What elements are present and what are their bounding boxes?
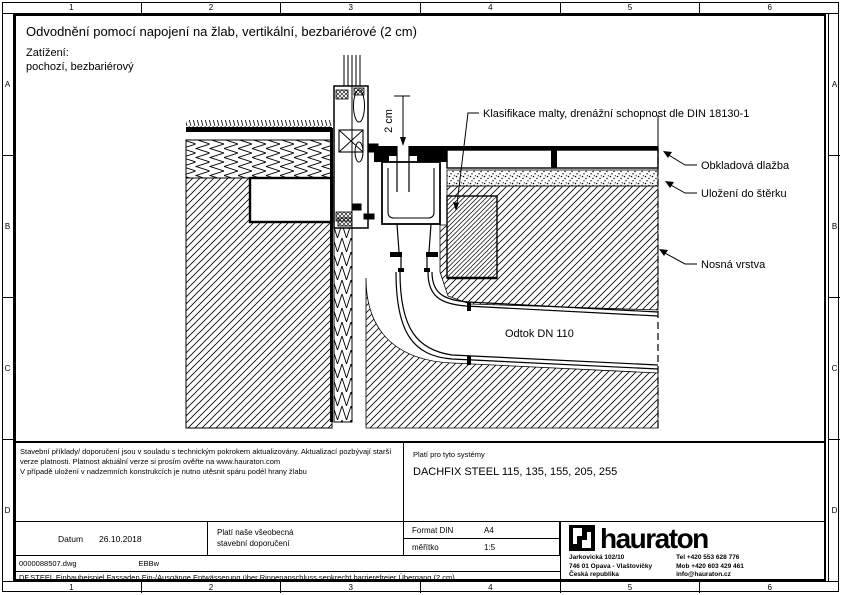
brand-cell: hauraton Jarkovická 102/10 746 01 Opava … <box>560 521 826 583</box>
notes-cell: Stavební příklady/ doporučení jsou v sou… <box>14 443 404 521</box>
grid-ref-strip-right: A B C D <box>828 14 840 581</box>
date-cell: Datum 26.10.2018 <box>14 521 208 555</box>
outlet-label: Odtok DN 110 <box>505 328 574 340</box>
grid-row-label: B <box>829 156 840 298</box>
file-name: 0000088507.dwg <box>19 559 77 568</box>
bedding-label: Uložení do štěrku <box>701 188 787 200</box>
systems-label: Platí pro tyto systémy <box>413 450 826 459</box>
scale-label: měřítko <box>412 543 484 552</box>
pavement-layers <box>440 146 658 310</box>
format-row: Format DIN A4 <box>404 522 559 539</box>
address-line: Česká republika <box>569 571 652 580</box>
grid-col-label: 5 <box>561 582 701 593</box>
grid-col-label: 5 <box>561 2 701 13</box>
brand-address-col: Jarkovická 102/10 746 01 Opava - Vlaštov… <box>569 554 652 580</box>
file-cell: 0000088507.dwg EBBw <box>14 555 560 571</box>
grid-col-label: 3 <box>281 2 421 13</box>
grid-ref-strip-top: 1 2 3 4 5 6 <box>2 2 839 14</box>
hauraton-logo-icon <box>569 525 595 551</box>
format-scale-cell: Format DIN A4 měřítko 1:5 <box>404 521 560 555</box>
brand-contact-col: Tel +420 553 628 776 Mob +420 603 429 46… <box>676 554 744 580</box>
date-value: 26.10.2018 <box>99 534 142 544</box>
mortar-note-label: Klasifikace malty, drenážní schopnost dl… <box>483 108 749 120</box>
recommendation-line: stavební doporučení <box>217 538 403 549</box>
grid-col-label: 2 <box>142 2 282 13</box>
dimension-2cm: 2 cm <box>383 96 410 146</box>
grid-row-label: C <box>2 298 13 440</box>
mobile-line: Mob +420 603 429 461 <box>676 563 744 572</box>
grid-col-label: 4 <box>421 2 561 13</box>
cad-sheet: 1 2 3 4 5 6 1 2 3 4 5 6 A B C D A B C D … <box>0 0 842 595</box>
section-drawing: 2 cm Klasifikace malty, drenážní schopno… <box>14 16 826 440</box>
notes-line: V případě uložení v nadzemních konstrukc… <box>20 467 399 477</box>
grid-col-label: 4 <box>421 582 561 593</box>
scale-row: měřítko 1:5 <box>404 539 559 556</box>
grid-ref-strip-left: A B C D <box>2 14 14 581</box>
address-line: 746 01 Opava - Vlaštovičky <box>569 563 652 572</box>
notes-line: Stavební příklady/ doporučení jsou v sou… <box>20 447 399 457</box>
grid-row-label: C <box>829 298 840 440</box>
brand-address: Jarkovická 102/10 746 01 Opava - Vlaštov… <box>569 554 826 580</box>
format-label: Format DIN <box>412 526 484 535</box>
address-line: Jarkovická 102/10 <box>569 554 652 563</box>
dimension-label: 2 cm <box>383 109 395 133</box>
grid-row-label: B <box>2 156 13 298</box>
recommendation-cell: Platí naše všeobecná stavební doporučení <box>208 521 404 555</box>
door-frame-section <box>334 55 378 228</box>
grid-col-label: 1 <box>2 582 142 593</box>
grid-col-label: 6 <box>700 582 839 593</box>
grid-col-label: 2 <box>142 582 282 593</box>
tile-label: Obkladová dlažba <box>701 160 790 172</box>
grid-row-label: D <box>829 440 840 581</box>
description-cell: DF.STEEL Einbaubeispiel Fassaden Ein-/Au… <box>14 571 560 583</box>
phone-line: Tel +420 553 628 776 <box>676 554 744 563</box>
grid-col-label: 1 <box>2 2 142 13</box>
grid-col-label: 6 <box>700 2 839 13</box>
title-block: Stavební příklady/ doporučení jsou v sou… <box>14 441 826 581</box>
brand-wordmark: hauraton <box>600 526 708 551</box>
recommendation-line: Platí naše všeobecná <box>217 527 403 538</box>
wall-floor-structure <box>186 120 352 428</box>
grid-row-label: A <box>829 14 840 156</box>
systems-value: DACHFIX STEEL 115, 135, 155, 205, 255 <box>413 466 826 478</box>
grid-row-label: A <box>2 14 13 156</box>
base-layer-label: Nosná vrstva <box>701 259 766 271</box>
grid-row-label: D <box>2 440 13 581</box>
systems-cell: Platí pro tyto systémy DACHFIX STEEL 115… <box>404 443 826 521</box>
email-line: info@hauraton.cz <box>676 571 744 580</box>
grid-col-label: 3 <box>281 582 421 593</box>
drainage-channel <box>374 146 447 272</box>
format-value: A4 <box>484 526 494 535</box>
notes-line: verze platnosti. Platnost aktuální verze… <box>20 457 399 467</box>
date-label: Datum <box>58 534 83 544</box>
brand-logo-row: hauraton <box>569 525 826 551</box>
scale-value: 1:5 <box>484 543 495 552</box>
file-author: EBBw <box>139 559 159 568</box>
